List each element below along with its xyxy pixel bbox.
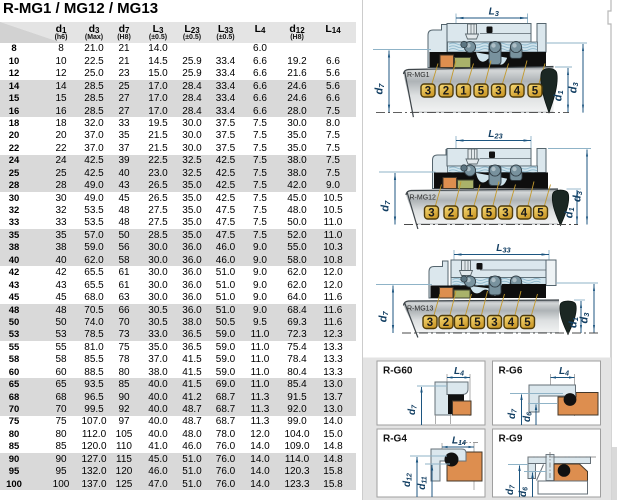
svg-text:3: 3 bbox=[502, 208, 508, 220]
svg-text:R-MG1: R-MG1 bbox=[407, 72, 430, 79]
svg-text:4: 4 bbox=[514, 86, 521, 98]
svg-text:3: 3 bbox=[425, 86, 431, 98]
svg-text:d3: d3 bbox=[568, 82, 581, 94]
svg-text:1: 1 bbox=[458, 317, 465, 329]
svg-text:2: 2 bbox=[443, 86, 449, 98]
svg-text:R-MG12: R-MG12 bbox=[410, 195, 437, 202]
svg-text:5: 5 bbox=[474, 317, 481, 329]
svg-text:2: 2 bbox=[443, 317, 449, 329]
svg-text:R-G6: R-G6 bbox=[499, 366, 523, 377]
svg-text:L3: L3 bbox=[489, 7, 500, 19]
svg-text:4: 4 bbox=[521, 208, 528, 220]
svg-text:5: 5 bbox=[524, 317, 531, 329]
svg-text:5: 5 bbox=[537, 208, 544, 220]
svg-text:5: 5 bbox=[532, 86, 539, 98]
svg-text:1: 1 bbox=[460, 86, 467, 98]
svg-text:5: 5 bbox=[486, 208, 493, 220]
svg-text:2: 2 bbox=[448, 208, 454, 220]
svg-text:L33: L33 bbox=[496, 243, 511, 255]
svg-text:1: 1 bbox=[467, 208, 474, 220]
svg-text:5: 5 bbox=[478, 86, 485, 98]
svg-text:R-MG13: R-MG13 bbox=[407, 306, 434, 313]
svg-text:R-G4: R-G4 bbox=[383, 434, 407, 445]
svg-text:3: 3 bbox=[427, 317, 433, 329]
svg-text:R-G9: R-G9 bbox=[499, 434, 523, 445]
svg-text:L23: L23 bbox=[488, 129, 503, 141]
svg-text:d7: d7 bbox=[378, 311, 391, 323]
svg-text:3: 3 bbox=[491, 317, 497, 329]
svg-text:4: 4 bbox=[508, 317, 515, 329]
svg-text:d7: d7 bbox=[374, 83, 387, 95]
svg-text:3: 3 bbox=[428, 208, 434, 220]
svg-text:R-G60: R-G60 bbox=[383, 366, 413, 377]
svg-text:d7: d7 bbox=[380, 200, 393, 212]
svg-text:d3: d3 bbox=[572, 190, 585, 202]
svg-text:3: 3 bbox=[495, 86, 501, 98]
svg-text:d3: d3 bbox=[579, 312, 592, 324]
